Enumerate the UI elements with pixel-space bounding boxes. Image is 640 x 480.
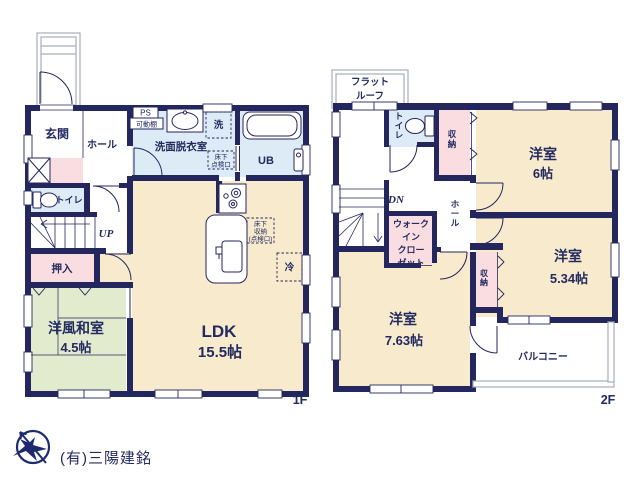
floor-plan-svg: 玄関 ホール トイレ UP 押入 洋風和室 4.5帖 LDK 15.5帖 洗面脱…: [0, 0, 640, 480]
label-ldk-size: 15.5帖: [198, 343, 242, 361]
label-senmen: 洗面脱衣室: [155, 140, 208, 153]
label-balcony: バルコニー: [518, 351, 568, 363]
label-kadodana: 可動棚: [136, 120, 157, 129]
label-oshiire: 押入: [52, 262, 73, 275]
vanity-sink-icon: [167, 109, 203, 132]
entrance-porch: [37, 33, 80, 107]
label-washer: 洗: [214, 119, 224, 131]
label-wic-2: イン: [402, 232, 420, 242]
label-room534-size: 5.34帖: [550, 271, 588, 286]
label-room763: 洋室: [389, 311, 417, 327]
label-toilet-1f: トイレ: [55, 195, 82, 205]
label-shuno-3: (点検口): [249, 234, 273, 243]
shoe-box-icon: [28, 158, 50, 183]
label-room534: 洋室: [554, 248, 582, 264]
label-hall-2f: ホール: [451, 199, 460, 228]
label-room6: 洋室: [529, 146, 557, 162]
toilet-icon-1f: [33, 192, 58, 208]
label-dn: DN: [387, 194, 405, 206]
company-name: (有)三陽建銘: [60, 450, 152, 467]
label-room763-size: 7.63帖: [385, 333, 423, 348]
bathtub-icon: [243, 112, 301, 139]
label-floor-1f: 1F: [293, 393, 308, 407]
label-room6-size: 6帖: [533, 166, 553, 181]
stairs-2f: [339, 189, 384, 246]
ub-counter-icon: [294, 149, 303, 171]
label-toilet-2f: トイレ: [395, 111, 404, 140]
label-ps: PS: [140, 109, 151, 118]
label-ldk: LDK: [202, 322, 238, 341]
label-floor-2f: 2F: [601, 393, 616, 407]
label-flatroof-1: フラット: [351, 77, 389, 88]
label-up: UP: [99, 228, 114, 240]
label-wic-1: ウォーク: [393, 219, 429, 229]
label-tenken-1: 床下: [215, 152, 229, 161]
label-flatroof-2: ルーフ: [356, 91, 384, 102]
label-closet-a: 収納: [448, 129, 457, 149]
company-logo: (有)三陽建銘: [13, 431, 152, 467]
closet-a-door-marks: [470, 112, 477, 160]
label-shuno-2: 収納: [254, 227, 267, 236]
label-closet-b: 収納: [480, 268, 489, 287]
label-genkan: 玄関: [45, 126, 69, 141]
stove-icon: [219, 184, 246, 213]
label-washitsu-size: 4.5帖: [60, 340, 91, 355]
label-wic-3: クロー: [397, 245, 424, 255]
balcony-door: [470, 326, 497, 353]
floor-plan-page: { "company": "(有)三陽建銘", "floors": { "f1"…: [0, 0, 640, 480]
label-washitsu: 洋風和室: [48, 320, 104, 336]
stairs-1f: [27, 217, 95, 248]
label-ub: UB: [258, 155, 274, 167]
label-fridge: 冷: [285, 262, 295, 274]
toilet-door-1f: [93, 186, 119, 212]
label-shuno-1: 床下: [254, 219, 268, 228]
kitchen-counter-icon: [206, 215, 247, 283]
label-wic-4: ゼット: [397, 257, 424, 268]
label-tenken-2: 点検口: [211, 160, 231, 169]
label-hall-1f: ホール: [87, 139, 117, 151]
shoe-cabinet: [50, 158, 83, 183]
toilet-door-2f: [390, 145, 417, 172]
